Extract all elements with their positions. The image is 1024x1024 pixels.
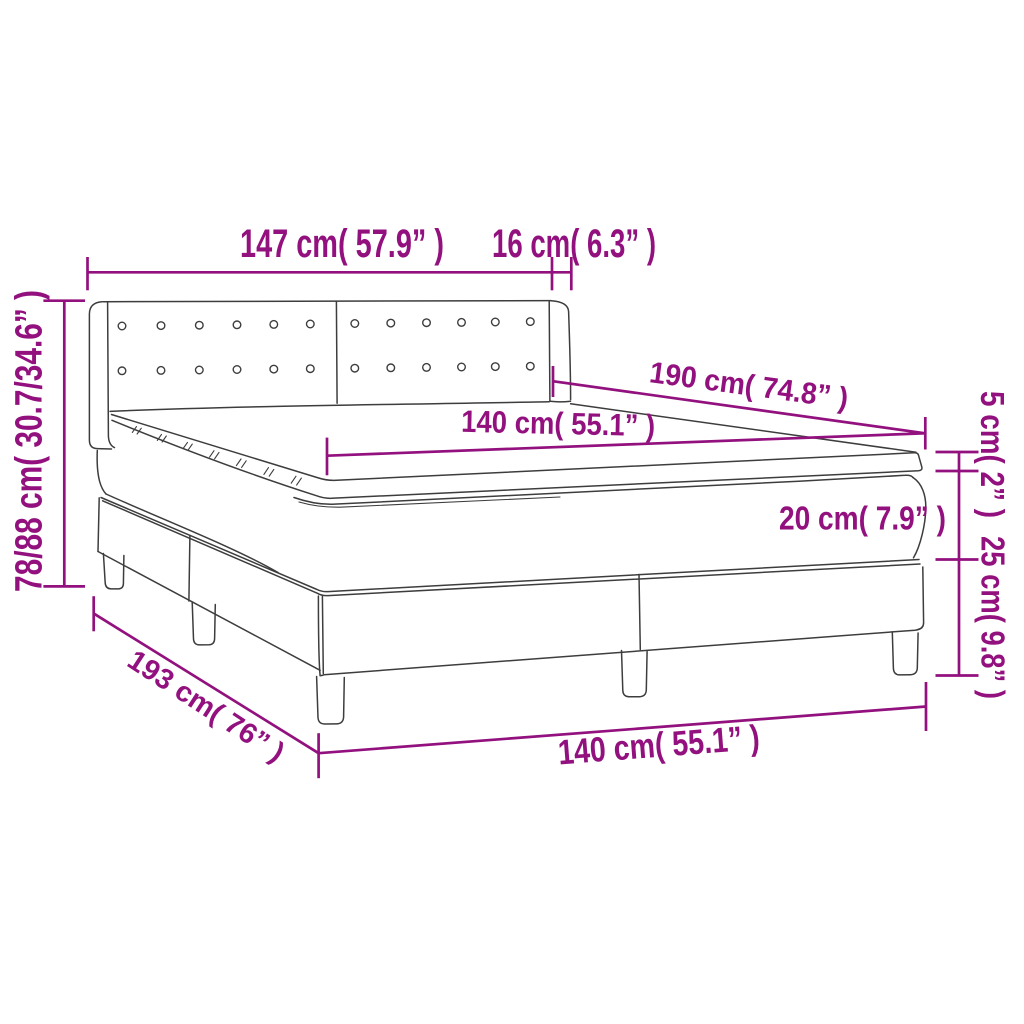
svg-text:20 cm( 7.9” ): 20 cm( 7.9” ) bbox=[779, 499, 946, 536]
svg-text:140 cm( 55.1” ): 140 cm( 55.1” ) bbox=[461, 404, 656, 443]
svg-text:25 cm( 9.8” ): 25 cm( 9.8” ) bbox=[975, 536, 1012, 699]
svg-text:5 cm( 2” ): 5 cm( 2” ) bbox=[974, 391, 1011, 518]
svg-text:78/88 cm( 30.7/34.6” ): 78/88 cm( 30.7/34.6” ) bbox=[9, 290, 51, 592]
svg-text:16 cm( 6.3” ): 16 cm( 6.3” ) bbox=[492, 222, 656, 266]
svg-text:147 cm( 57.9” ): 147 cm( 57.9” ) bbox=[240, 222, 444, 266]
